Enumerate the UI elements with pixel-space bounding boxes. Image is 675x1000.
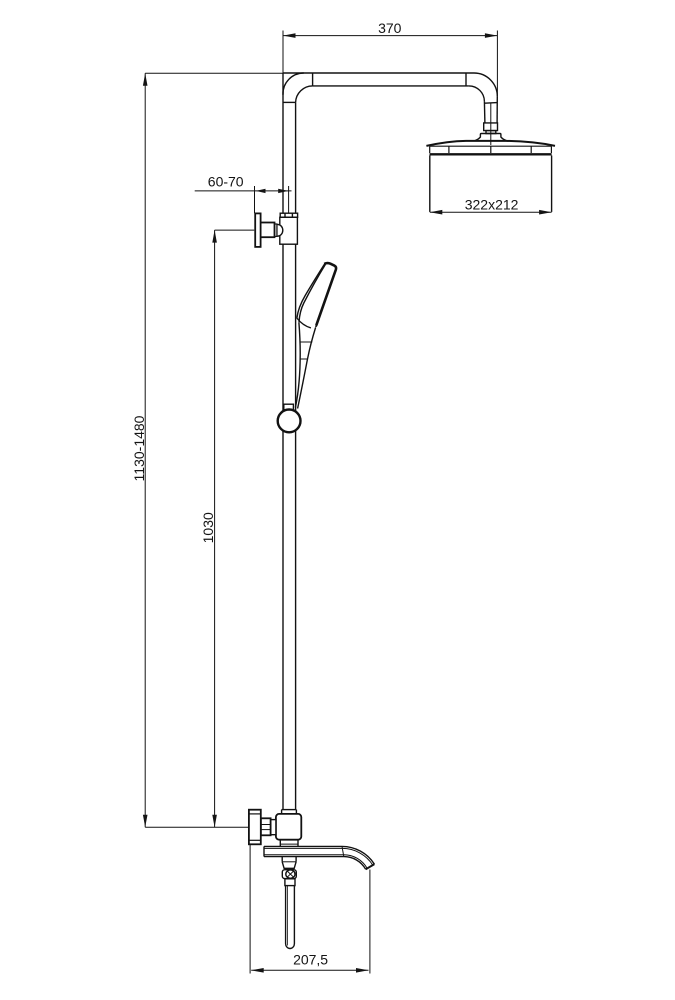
svg-text:1030: 1030 [200, 512, 216, 543]
svg-text:322x212: 322x212 [465, 197, 519, 213]
svg-text:370: 370 [378, 20, 402, 36]
svg-text:207,5: 207,5 [293, 952, 328, 968]
svg-text:1130-1480: 1130-1480 [131, 415, 147, 481]
svg-text:60-70: 60-70 [208, 174, 244, 190]
